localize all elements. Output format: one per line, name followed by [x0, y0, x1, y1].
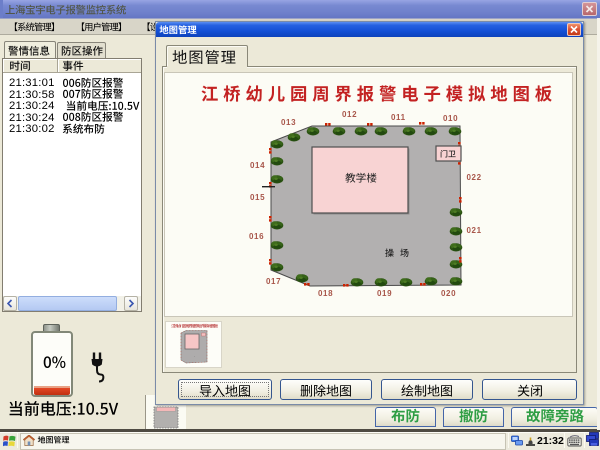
- svg-text:.: .: [194, 354, 195, 358]
